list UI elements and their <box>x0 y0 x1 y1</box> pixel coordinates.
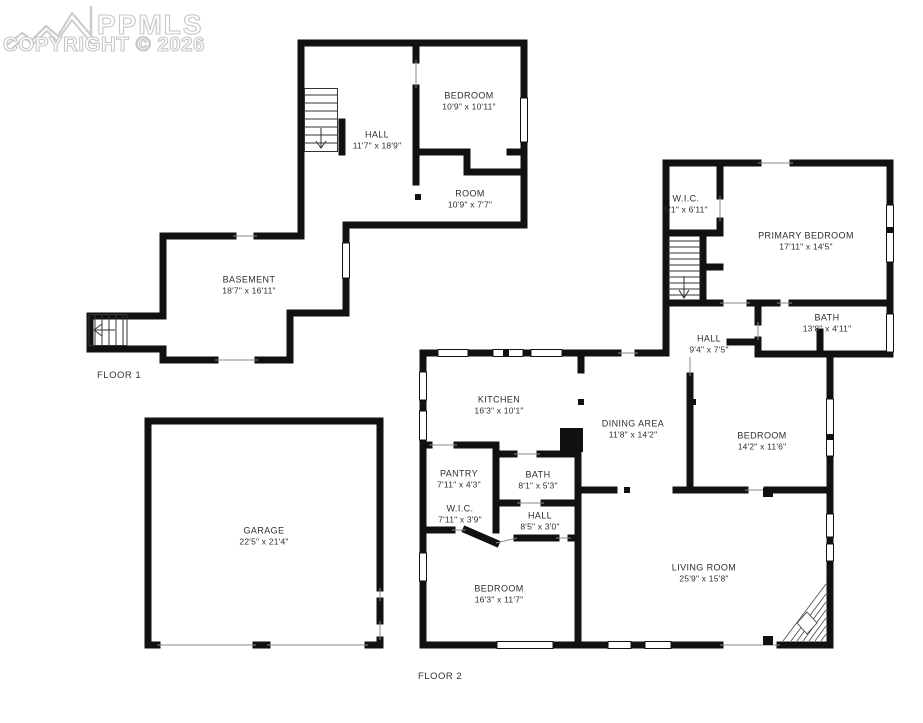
room-label-primary-bedroom: PRIMARY BEDROOM 17'11" x 14'5" <box>758 231 854 252</box>
room-dims: 13'8" x 4'11" <box>803 324 852 334</box>
room-label-wic-upper: W.I.C. 5'1" x 6'11" <box>664 194 708 215</box>
room-dims: 25'9" x 15'8" <box>672 574 736 584</box>
window <box>827 514 834 537</box>
room-dims: 11'7" x 18'9" <box>353 141 402 151</box>
room-dims: 5'1" x 6'11" <box>664 205 708 215</box>
room-name: DINING AREA <box>602 419 664 429</box>
window <box>827 544 834 561</box>
garage-wall-ticks <box>145 418 383 530</box>
room-name: HALL <box>689 334 728 344</box>
room-name: ROOM <box>448 189 492 199</box>
window <box>420 372 427 400</box>
window <box>645 642 671 649</box>
watermark-copyright: COPYRIGHT © 2026 <box>3 33 205 56</box>
window <box>608 642 631 649</box>
room-name: BEDROOM <box>474 584 523 594</box>
room-label-hall-main: HALL 8'5" x 3'0" <box>520 511 559 532</box>
room-dims: 17'11" x 14'5" <box>758 242 854 252</box>
floor2-upper-plan <box>666 160 894 354</box>
room-name: PANTRY <box>437 469 481 479</box>
room-label-basement: BASEMENT 18'7" x 16'11" <box>222 275 276 296</box>
room-label-f1-hall: HALL 11'7" x 18'9" <box>353 130 402 151</box>
room-label-bedroom-ne: BEDROOM 14'2" x 11'6" <box>737 431 786 452</box>
room-name: BATH <box>803 313 852 323</box>
floor1-windows <box>343 98 528 278</box>
window <box>887 314 894 352</box>
window <box>521 98 528 142</box>
room-name: KITCHEN <box>474 395 523 405</box>
room-name: BEDROOM <box>442 91 496 101</box>
wall-stub <box>763 488 773 497</box>
room-name: W.I.C. <box>438 504 482 514</box>
garage-door-openings <box>157 588 380 645</box>
room-name: HALL <box>520 511 559 521</box>
room-label-pantry: PANTRY 7'11" x 4'3" <box>437 469 481 490</box>
room-label-bath-main: BATH 8'1" x 5'3" <box>518 470 557 491</box>
room-name: GARAGE <box>239 526 288 536</box>
fireplace-hearth-diamond <box>797 612 817 634</box>
room-dims: 14'2" x 11'6" <box>737 442 786 452</box>
room-dims: 10'9" x 7'7" <box>448 200 492 210</box>
room-label-bedroom-sw: BEDROOM 16'3" x 11'7" <box>474 584 523 605</box>
room-name: BATH <box>518 470 557 480</box>
room-dims: 8'5" x 3'0" <box>520 522 559 532</box>
room-dims: 16'3" x 10'1" <box>474 406 523 416</box>
room-dims: 16'3" x 11'7" <box>474 595 523 605</box>
room-name: HALL <box>353 130 402 140</box>
room-name: W.I.C. <box>664 194 708 204</box>
room-dims: 8'1" x 5'3" <box>518 481 557 491</box>
window <box>420 411 427 440</box>
room-name: BEDROOM <box>737 431 786 441</box>
room-label-hall-upper: HALL 9'4" x 7'5" <box>689 334 728 355</box>
room-label-bath-upper: BATH 13'8" x 4'11" <box>803 313 852 334</box>
window <box>420 553 427 581</box>
floor2-stairs <box>668 241 701 298</box>
room-dims: 7'11" x 3'9" <box>438 515 482 525</box>
room-label-dining-area: DINING AREA 11'8" x 14'2" <box>602 419 664 440</box>
room-dims: 10'9" x 10'11" <box>442 102 496 112</box>
window <box>438 350 468 357</box>
room-label-garage: GARAGE 22'5" x 21'4" <box>239 526 288 547</box>
window <box>887 205 894 262</box>
floor1-hall-stairs <box>305 89 338 152</box>
window <box>343 243 350 278</box>
room-dims: 18'7" x 16'11" <box>222 286 276 296</box>
room-name: PRIMARY BEDROOM <box>758 231 854 241</box>
corner-fireplace <box>783 584 826 641</box>
window <box>827 399 834 456</box>
chimney-block <box>560 428 583 452</box>
floor2-label: FLOOR 2 <box>418 671 462 682</box>
room-name: LIVING ROOM <box>672 563 736 573</box>
room-label-kitchen: KITCHEN 16'3" x 10'1" <box>474 395 523 416</box>
room-label-wic-main: W.I.C. 7'11" x 3'9" <box>438 504 482 525</box>
room-label-f1-bedroom: BEDROOM 10'9" x 10'11" <box>442 91 496 112</box>
room-dims: 22'5" x 21'4" <box>239 537 288 547</box>
room-name: BASEMENT <box>222 275 276 285</box>
window <box>497 642 553 649</box>
room-dims: 7'11" x 4'3" <box>437 480 481 490</box>
room-dims: 9'4" x 7'5" <box>689 345 728 355</box>
floorplan-page: PPMLS COPYRIGHT © 2026 <box>0 0 923 723</box>
window <box>531 350 562 357</box>
floor1-label: FLOOR 1 <box>97 370 141 381</box>
room-dims: 11'8" x 14'2" <box>602 430 664 440</box>
room-label-living-room: LIVING ROOM 25'9" x 15'8" <box>672 563 736 584</box>
room-label-f1-room: ROOM 10'9" x 7'7" <box>448 189 492 210</box>
watermark: PPMLS COPYRIGHT © 2026 <box>3 6 205 56</box>
wall-stub <box>763 636 773 645</box>
